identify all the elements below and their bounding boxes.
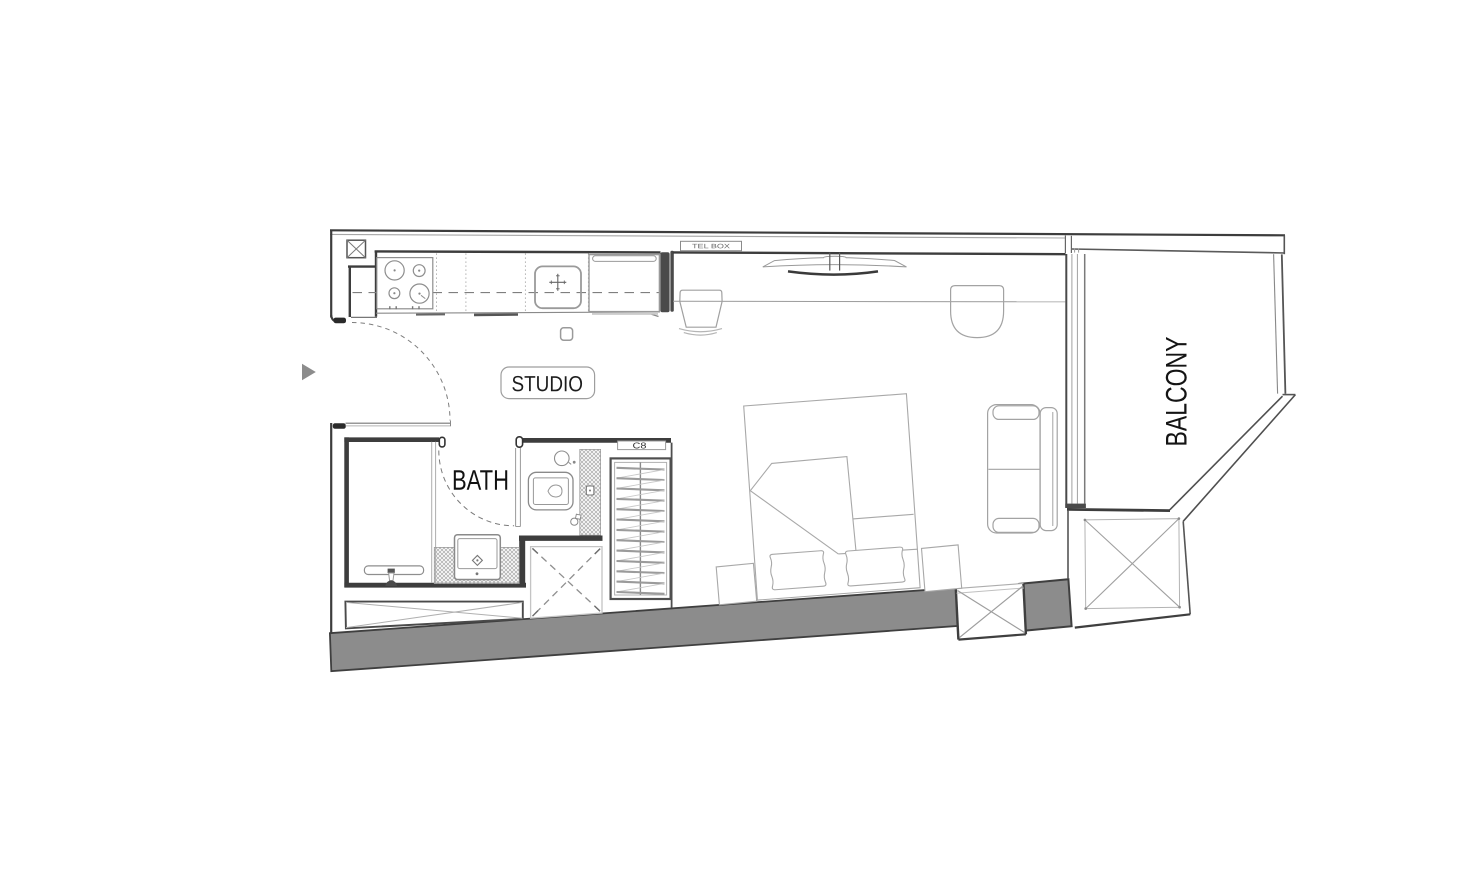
svg-text:TEL BOX: TEL BOX <box>692 243 731 250</box>
svg-text:STUDIO: STUDIO <box>511 371 583 396</box>
svg-text:C8: C8 <box>632 440 646 450</box>
svg-text:BALCONY: BALCONY <box>1160 337 1193 447</box>
svg-text:BATH: BATH <box>452 465 509 497</box>
